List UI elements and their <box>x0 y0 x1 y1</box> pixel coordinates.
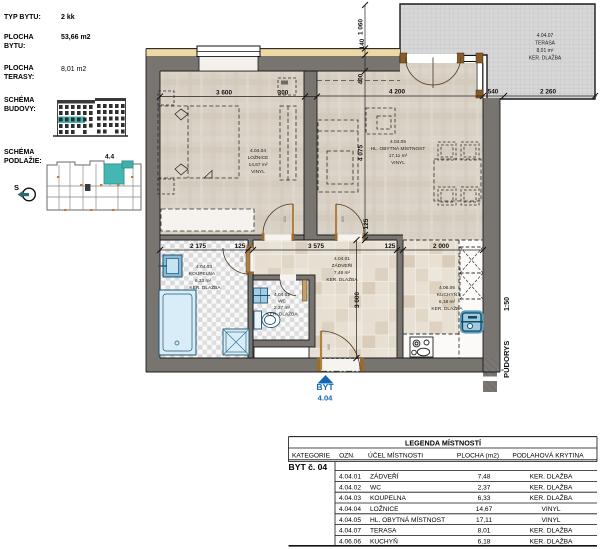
svg-text:HL. OBYTNÁ MÍSTNOST: HL. OBYTNÁ MÍSTNOST <box>371 145 426 152</box>
svg-text:4.04.05: 4.04.05 <box>390 139 406 145</box>
svg-text:4.04.02: 4.04.02 <box>339 484 361 491</box>
svg-text:3 600: 3 600 <box>216 90 232 97</box>
svg-text:8,01: 8,01 <box>478 528 491 535</box>
svg-text:8,01 m2: 8,01 m2 <box>61 66 86 73</box>
svg-text:400: 400 <box>358 73 365 84</box>
svg-text:KER. DLAŽBA: KER. DLAŽBA <box>530 472 573 481</box>
svg-text:KUCHYŇ: KUCHYŇ <box>370 536 398 545</box>
svg-text:PODLAŽIE:: PODLAŽIE: <box>4 156 42 165</box>
svg-text:TERASY:: TERASY: <box>4 74 34 81</box>
svg-text:SCHÉMA: SCHÉMA <box>4 147 34 156</box>
svg-text:KOUPELNA: KOUPELNA <box>370 495 407 502</box>
svg-text:4.04.04: 4.04.04 <box>250 148 266 154</box>
svg-text:53,66 m2: 53,66 m2 <box>61 34 91 41</box>
svg-text:3 575: 3 575 <box>308 243 324 250</box>
svg-text:KER. DLAŽBA: KER. DLAŽBA <box>530 526 573 535</box>
svg-text:PLOCHA: PLOCHA <box>4 65 34 72</box>
svg-text:KATEGORIE: KATEGORIE <box>292 453 331 460</box>
svg-text:TERASA: TERASA <box>535 41 556 47</box>
svg-text:VINYL: VINYL <box>251 169 265 175</box>
svg-text:17,11 m²: 17,11 m² <box>389 153 408 159</box>
svg-text:KER. DLAŽBA: KER. DLAŽBA <box>530 493 573 502</box>
svg-text:HL. OBYTNÁ MÍSTNOST: HL. OBYTNÁ MÍSTNOST <box>370 515 445 524</box>
svg-text:4.04.03: 4.04.03 <box>339 495 361 502</box>
svg-text:3 000: 3 000 <box>354 292 361 308</box>
svg-text:6,18: 6,18 <box>478 538 491 545</box>
svg-text:4.4: 4.4 <box>105 154 114 161</box>
svg-text:ZÁDVEŘÍ: ZÁDVEŘÍ <box>370 472 399 481</box>
svg-text:6,18 m²: 6,18 m² <box>439 299 456 305</box>
svg-text:8,01 m²: 8,01 m² <box>537 48 554 54</box>
svg-text:2,37: 2,37 <box>478 484 491 491</box>
svg-text:900: 900 <box>327 344 331 350</box>
svg-text:TYP BYTU:: TYP BYTU: <box>4 14 41 21</box>
svg-text:4.04.01: 4.04.01 <box>339 474 361 481</box>
svg-text:800: 800 <box>341 216 345 222</box>
svg-text:PŮDORYS: PŮDORYS <box>501 341 511 378</box>
svg-text:800: 800 <box>283 216 287 222</box>
svg-text:2 kk: 2 kk <box>61 14 75 21</box>
svg-text:4.04.01: 4.04.01 <box>334 256 350 262</box>
svg-text:17,11: 17,11 <box>476 517 492 524</box>
svg-text:4 200: 4 200 <box>389 89 405 96</box>
svg-text:4.04.04: 4.04.04 <box>339 506 361 513</box>
svg-text:LEGENDA MÍSTNOSTÍ: LEGENDA MÍSTNOSTÍ <box>405 439 482 448</box>
svg-text:1:50: 1:50 <box>504 297 511 311</box>
svg-text:7,48: 7,48 <box>478 474 491 481</box>
svg-text:BYTU:: BYTU: <box>4 43 25 50</box>
svg-text:4 075: 4 075 <box>358 145 365 161</box>
svg-text:140: 140 <box>359 38 366 49</box>
svg-text:KER. DLAŽBA: KER. DLAŽBA <box>530 536 573 545</box>
svg-text:BYT č. 04: BYT č. 04 <box>289 462 328 472</box>
svg-text:540: 540 <box>488 89 499 96</box>
svg-text:125: 125 <box>363 218 370 229</box>
svg-text:PLOCHA (m2): PLOCHA (m2) <box>457 453 499 460</box>
svg-text:2 260: 2 260 <box>540 89 556 96</box>
svg-text:4.04.02: 4.04.02 <box>274 292 290 298</box>
svg-text:WC: WC <box>370 484 381 491</box>
svg-text:ÚČEL MÍSTNOSTI: ÚČEL MÍSTNOSTI <box>368 451 423 460</box>
svg-text:800: 800 <box>240 256 244 262</box>
svg-text:PODLAHOVÁ KRYTINA: PODLAHOVÁ KRYTINA <box>512 451 584 460</box>
svg-text:2,37 m²: 2,37 m² <box>274 305 291 311</box>
svg-text:2 175: 2 175 <box>190 243 206 250</box>
svg-text:LOŽNICE: LOŽNICE <box>370 504 399 513</box>
svg-text:6,33 m²: 6,33 m² <box>195 278 212 284</box>
svg-text:4.04.07: 4.04.07 <box>537 33 554 39</box>
svg-text:4.06.06: 4.06.06 <box>339 538 361 545</box>
svg-text:S: S <box>14 183 19 192</box>
svg-text:PLOCHA: PLOCHA <box>4 34 34 41</box>
svg-text:BUDOVY:: BUDOVY: <box>4 106 36 113</box>
svg-text:TERASA: TERASA <box>370 528 397 535</box>
svg-text:1 060: 1 060 <box>358 19 365 35</box>
svg-text:125: 125 <box>235 243 246 250</box>
svg-text:7,48 m²: 7,48 m² <box>334 270 351 276</box>
svg-text:6,33: 6,33 <box>478 495 491 502</box>
svg-text:KER. DLAŽBA: KER. DLAŽBA <box>529 54 562 62</box>
svg-text:KUCHYŇ: KUCHYŇ <box>437 291 458 298</box>
svg-text:OZN.: OZN. <box>339 453 355 460</box>
svg-text:125: 125 <box>385 243 396 250</box>
svg-text:WC: WC <box>278 299 287 305</box>
svg-text:2 000: 2 000 <box>433 243 449 250</box>
svg-text:4.06.06: 4.06.06 <box>439 285 455 291</box>
svg-text:4.04.07: 4.04.07 <box>339 528 361 535</box>
svg-text:300: 300 <box>278 90 289 97</box>
svg-text:14,67 m²: 14,67 m² <box>249 162 268 168</box>
svg-text:4.04: 4.04 <box>318 394 334 403</box>
svg-text:SCHÉMA: SCHÉMA <box>4 95 34 104</box>
svg-text:KER. DLAŽBA: KER. DLAŽBA <box>530 482 573 491</box>
svg-text:VINYL: VINYL <box>541 517 560 524</box>
svg-text:KOUPELNA: KOUPELNA <box>189 271 216 277</box>
svg-text:4.04.03: 4.04.03 <box>196 264 212 270</box>
svg-text:VINYL: VINYL <box>541 506 560 513</box>
svg-text:VINYL: VINYL <box>391 160 405 166</box>
svg-text:BYT: BYT <box>316 382 334 392</box>
svg-text:4.04.05: 4.04.05 <box>339 517 361 524</box>
svg-text:14,67: 14,67 <box>476 506 493 513</box>
